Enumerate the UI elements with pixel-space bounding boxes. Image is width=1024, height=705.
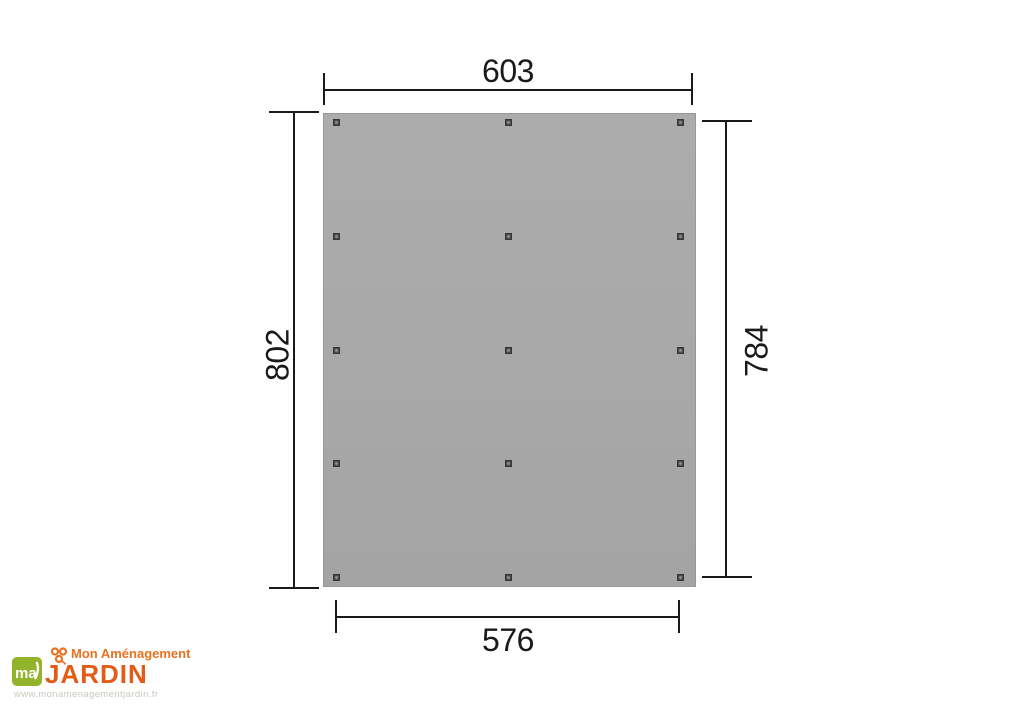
logo-mark-icon: ma (12, 657, 42, 686)
post-marker (505, 233, 512, 240)
dimension-left-tick-bottom (269, 587, 319, 589)
dimension-right-tick-top (702, 120, 752, 122)
post-marker (333, 347, 340, 354)
dimension-top-tick-right (691, 73, 693, 105)
dimension-left-tick-top (269, 111, 319, 113)
dimension-right-tick-bottom (702, 576, 752, 578)
dimension-bottom-tick-right (678, 600, 680, 633)
post-marker (333, 460, 340, 467)
brand-url: www.monamenagementjardin.fr (14, 689, 158, 700)
post-marker (505, 574, 512, 581)
dimension-right-label: 784 (739, 325, 776, 377)
post-marker (677, 233, 684, 240)
logo-mark-text: ma (15, 665, 37, 682)
dimension-drawing: 603 576 802 784 ma Mon Aménagem (0, 0, 1024, 705)
dimension-bottom-tick-left (335, 600, 337, 633)
dimension-bottom-label: 576 (482, 622, 534, 659)
brand-name-main: JARDIN (45, 659, 148, 690)
post-marker (677, 347, 684, 354)
brand-logo: ma Mon Aménagement JARDIN www.monamenage… (12, 643, 172, 701)
dimension-right-line (725, 121, 727, 578)
post-marker (333, 119, 340, 126)
post-marker (677, 460, 684, 467)
post-marker (677, 574, 684, 581)
post-marker (333, 574, 340, 581)
post-marker (677, 119, 684, 126)
dimension-left-label: 802 (260, 329, 297, 381)
dimension-bottom-line (336, 616, 680, 618)
post-marker (505, 347, 512, 354)
post-marker (505, 119, 512, 126)
dimension-top-tick-left (323, 73, 325, 105)
dimension-top-label: 603 (482, 53, 534, 90)
post-marker (505, 460, 512, 467)
post-marker (333, 233, 340, 240)
